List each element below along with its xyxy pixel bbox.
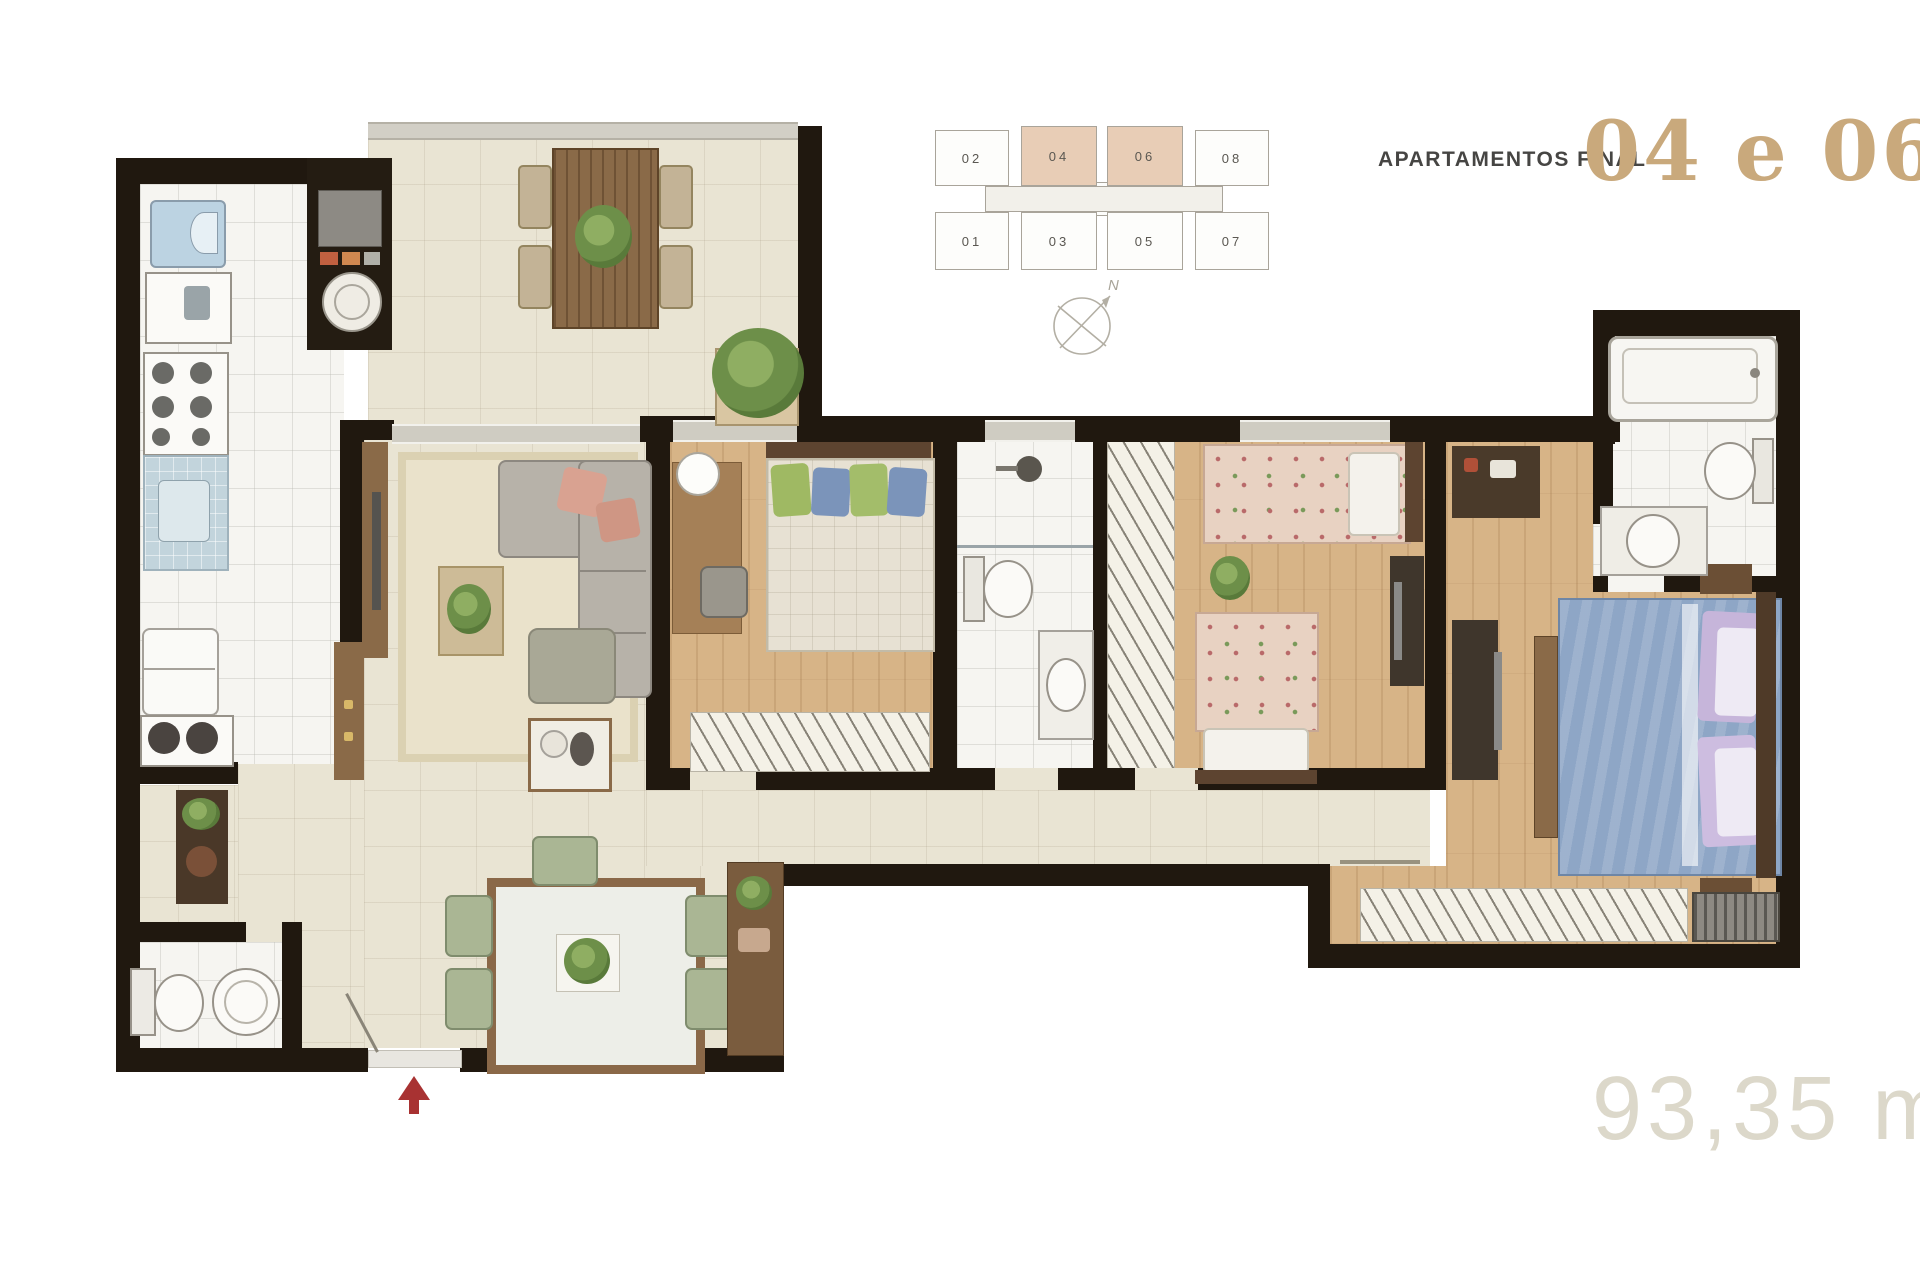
bed1-pillow-blue (811, 467, 851, 517)
master-bench (1534, 636, 1558, 838)
ensuite-bathtub-inner (1622, 348, 1758, 404)
fridge-door-line (142, 668, 215, 670)
bar-cart-decor (570, 732, 594, 766)
master-tv-cabinet (1452, 620, 1498, 780)
wall-bathroom-closet (1093, 424, 1107, 790)
laundry-tank-basin (190, 212, 218, 254)
master-vanity-desk (1452, 446, 1540, 518)
dining-centerpiece-plant (564, 938, 610, 984)
bed1-desk-chair (700, 566, 748, 618)
shower-head-icon (1016, 456, 1042, 482)
dining-chair (685, 968, 733, 1030)
entry-arrow-icon (398, 1076, 430, 1100)
balcony-chair (659, 245, 693, 309)
balcony-chair (659, 165, 693, 229)
shower-glass (957, 545, 1093, 548)
key-plan-unit-04: 04 (1021, 126, 1097, 186)
bath1-toilet-tank (963, 556, 985, 622)
master-bed-sheet-fold (1682, 604, 1698, 866)
kitchen-sink-2 (158, 480, 210, 542)
bed1-pillow-blue (886, 467, 927, 518)
kitchen-tall-cabinet (334, 642, 364, 780)
master-tv-screen (1494, 652, 1502, 750)
balcony-railing (368, 122, 798, 140)
wall-lavabo-top (116, 922, 246, 942)
dining-chair (685, 895, 733, 957)
key-plan-unit-07: 07 (1195, 212, 1269, 270)
sink-basin (184, 286, 210, 320)
key-plan: 02 04 06 08 01 03 05 07 (935, 122, 1267, 274)
key-plan-unit-label: 04 (1049, 149, 1069, 164)
floorplan-page: APARTAMENTOS FINAL 04 e 06 93,35 m² 02 0… (0, 0, 1920, 1280)
table-centerpiece-plant (575, 205, 632, 268)
counter-bowl (148, 722, 180, 754)
wall-bottom-right (1330, 944, 1800, 968)
bath1-toilet-bowl (983, 560, 1033, 618)
key-plan-unit-label: 07 (1222, 234, 1242, 249)
cabinet-handle (344, 732, 353, 741)
wall-balcony-right (798, 126, 822, 440)
counter-bowl (186, 722, 218, 754)
ac-unit (1692, 892, 1780, 942)
stove-burner (190, 396, 212, 418)
bed2-bedA-pillow (1348, 452, 1400, 536)
stove-burner (152, 396, 174, 418)
wall-kitchen-top (116, 158, 312, 184)
closet-bedroom2 (1107, 432, 1175, 774)
stove-burner (190, 362, 212, 384)
balcony-chair (518, 165, 552, 229)
key-plan-unit-06: 06 (1107, 126, 1183, 186)
lavabo-toilet-bowl (154, 974, 204, 1032)
dining-chair (445, 895, 493, 957)
entry-console-bowl (186, 846, 217, 877)
sliding-door-balcony (392, 424, 640, 444)
balcony-tree (712, 328, 804, 418)
lavabo-sink-basin (224, 980, 268, 1024)
wall-lavabo-right (282, 922, 302, 1052)
master-vanity-decor-red (1464, 458, 1478, 472)
key-plan-unit-02: 02 (935, 130, 1009, 186)
bar-cart-bowl (540, 730, 568, 758)
key-plan-unit-label: 03 (1049, 234, 1069, 249)
wall-bedroom1-bathroom (933, 424, 957, 790)
corridor-floor (646, 790, 1430, 866)
key-plan-unit-label: 08 (1222, 151, 1242, 166)
door-master (1340, 860, 1420, 864)
key-plan-unit-03: 03 (1021, 212, 1097, 270)
sideboard-plant (736, 876, 772, 910)
window-bedroom2 (1240, 420, 1390, 442)
gourmet-spice-gray (364, 252, 380, 265)
bed2-bedA-headboard (1405, 442, 1423, 542)
master-pillow-white (1714, 627, 1759, 716)
door-bathroom-social (995, 768, 1058, 790)
shower-arm (996, 466, 1018, 471)
bed1-round-lamp (676, 452, 720, 496)
entry-arrow-stem (409, 1100, 419, 1114)
gourmet-spice-orange (342, 252, 360, 265)
wall-kitchen-living (340, 424, 364, 664)
bed2-plant (1210, 556, 1250, 600)
wall-corridor-bottom (760, 864, 1308, 886)
wall-step-right (1308, 864, 1330, 968)
key-plan-unit-05: 05 (1107, 212, 1183, 270)
key-plan-unit-08: 08 (1195, 130, 1269, 186)
sofa-cushion-line (580, 570, 646, 572)
bed2-bedB-headboard (1195, 770, 1317, 784)
compass-north-label: N (1108, 277, 1119, 294)
gourmet-counter-block (318, 190, 382, 247)
living-armchair (528, 628, 616, 704)
door-lavabo (246, 922, 282, 942)
closet-master (1360, 888, 1688, 942)
key-plan-unit-label: 06 (1135, 149, 1155, 164)
bed1-pillow-green (770, 463, 812, 518)
side-table-plant (447, 584, 491, 634)
stove-burner (152, 428, 170, 446)
master-pillow-white (1714, 747, 1759, 836)
bed1-headboard (766, 442, 931, 458)
sideboard-decor (738, 928, 770, 952)
bed1-pillow-green (849, 463, 889, 516)
master-headboard (1756, 592, 1776, 878)
gourmet-spice-red (320, 252, 338, 265)
stove-burner (152, 362, 174, 384)
cabinet-handle (344, 700, 353, 709)
door-bedroom2 (1135, 768, 1198, 790)
lavabo-toilet-tank (130, 968, 156, 1036)
balcony-chair (518, 245, 552, 309)
bed2-bedB-duvet (1195, 612, 1319, 732)
key-plan-core (985, 186, 1223, 212)
wall-bedroom2-master (1425, 440, 1446, 790)
master-vanity-decor-white (1490, 460, 1516, 478)
key-plan-unit-label: 05 (1135, 234, 1155, 249)
tv-screen (372, 492, 381, 610)
bed2-bedB-pillow (1203, 728, 1309, 774)
compass-icon: N (1044, 274, 1128, 366)
window-bathroom-social (985, 420, 1075, 442)
grill-icon-inner (334, 284, 370, 320)
wall-ensuite-top (1593, 310, 1800, 336)
fridge (142, 628, 219, 716)
ensuite-toilet-bowl (1704, 442, 1756, 500)
dining-chair (532, 836, 598, 886)
sofa-pillow (595, 497, 641, 543)
bed2-tv-screen (1394, 582, 1402, 660)
entry-console-plant (182, 798, 220, 830)
ensuite-tub-faucet (1750, 368, 1760, 378)
dining-chair (445, 968, 493, 1030)
ensuite-sink (1626, 514, 1680, 568)
door-ensuite (1608, 576, 1664, 592)
stove-burner (192, 428, 210, 446)
closet-bedroom1 (690, 712, 930, 772)
unit-numbers-title: 04 e 06 (1583, 104, 1920, 200)
bath1-sink (1046, 658, 1086, 712)
area-label: 93,35 m² (1592, 1058, 1920, 1161)
key-plan-unit-01: 01 (935, 212, 1009, 270)
entrance-threshold (368, 1050, 462, 1068)
key-plan-unit-label: 02 (962, 151, 982, 166)
key-plan-unit-label: 01 (962, 234, 982, 249)
